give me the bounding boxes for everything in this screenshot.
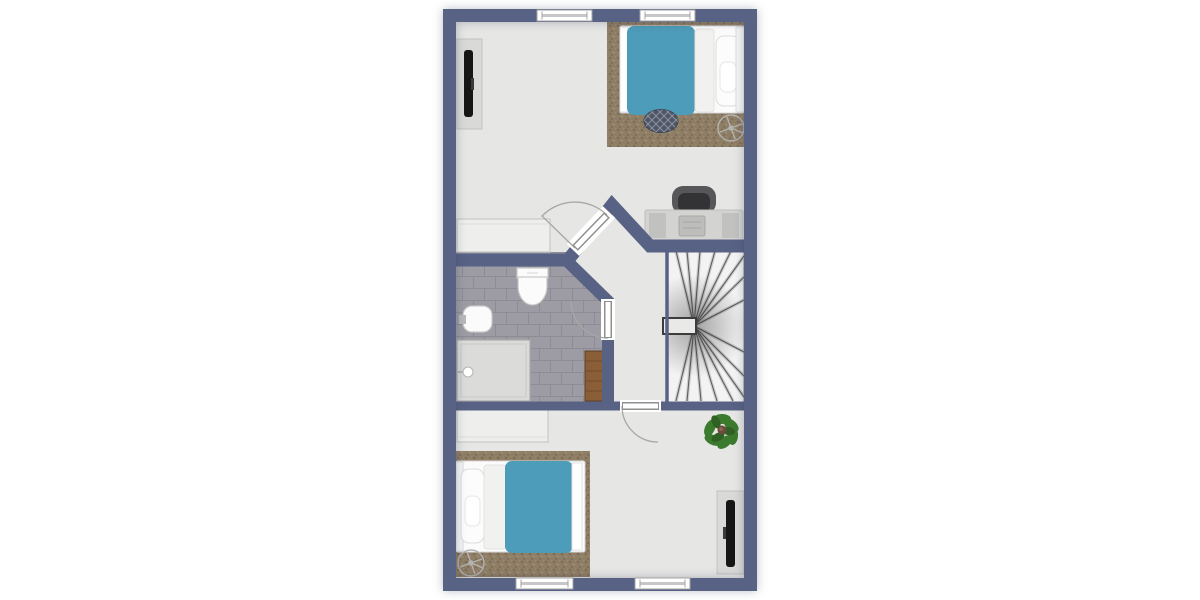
duvet-bottom [505, 461, 573, 553]
duvet-top [627, 26, 695, 115]
floor-plan-canvas [0, 0, 1200, 600]
window-top-2 [640, 10, 695, 21]
wood-bath-mat [585, 351, 603, 401]
shower [457, 340, 530, 401]
toilet [517, 268, 548, 305]
window-bottom-1 [516, 578, 573, 589]
bed-top [620, 26, 744, 115]
window-bottom-2 [635, 578, 690, 589]
pouf-pattern [644, 110, 678, 133]
window-top-1 [537, 10, 592, 21]
sink [459, 306, 492, 332]
faucet [459, 315, 466, 324]
bed-bottom [456, 461, 585, 553]
tv-foot [471, 78, 474, 90]
headboard-top [736, 27, 744, 112]
shower-head-icon [463, 367, 473, 377]
tv-icon-bottom [726, 500, 735, 567]
tv-foot-bottom [723, 527, 726, 539]
laptop [679, 216, 705, 236]
